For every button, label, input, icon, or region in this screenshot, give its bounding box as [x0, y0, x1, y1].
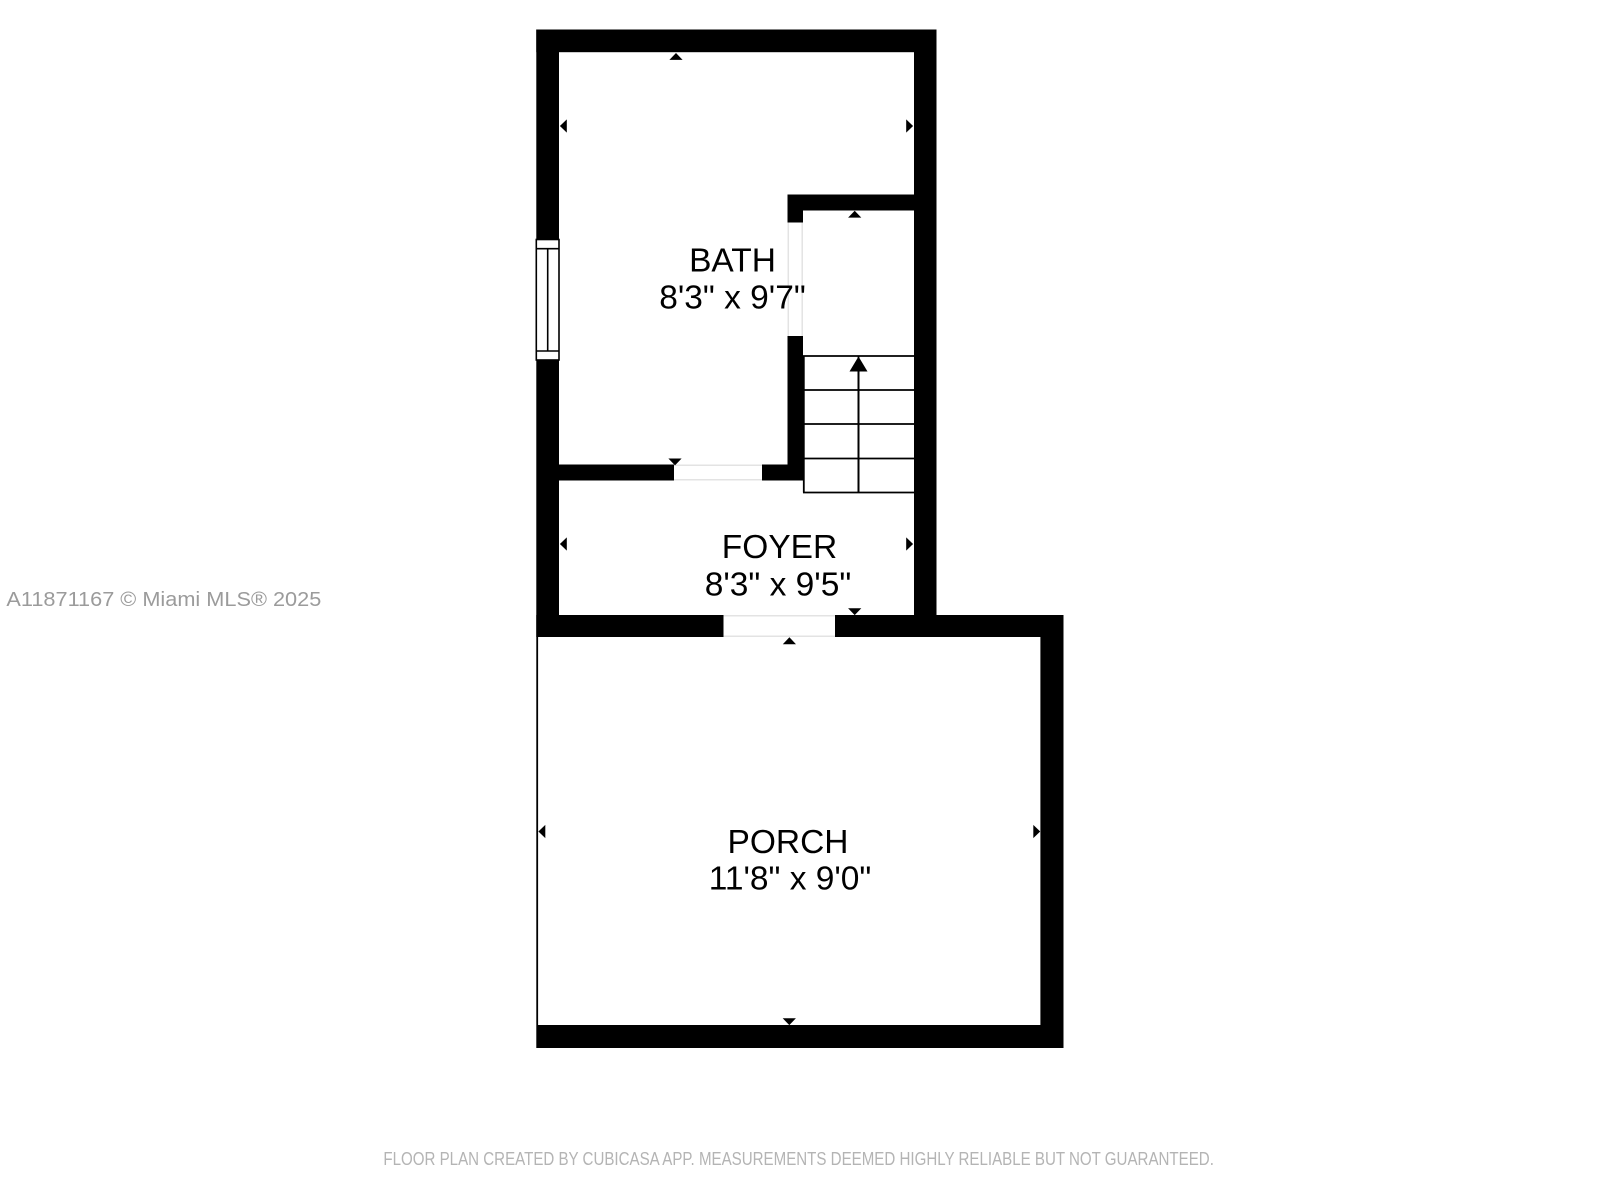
svg-text:FOYER: FOYER: [722, 529, 837, 566]
svg-text:8'3" x 9'7": 8'3" x 9'7": [659, 280, 805, 317]
svg-text:PORCH: PORCH: [728, 824, 849, 861]
svg-text:A11871167 © Miami MLS® 2025: A11871167 © Miami MLS® 2025: [6, 589, 321, 611]
svg-text:8'3" x 9'5": 8'3" x 9'5": [705, 566, 851, 603]
svg-text:BATH: BATH: [689, 243, 776, 280]
svg-text:FLOOR PLAN CREATED BY CUBICASA: FLOOR PLAN CREATED BY CUBICASA APP. MEAS…: [383, 1148, 1214, 1169]
svg-text:11'8" x 9'0": 11'8" x 9'0": [709, 860, 872, 897]
